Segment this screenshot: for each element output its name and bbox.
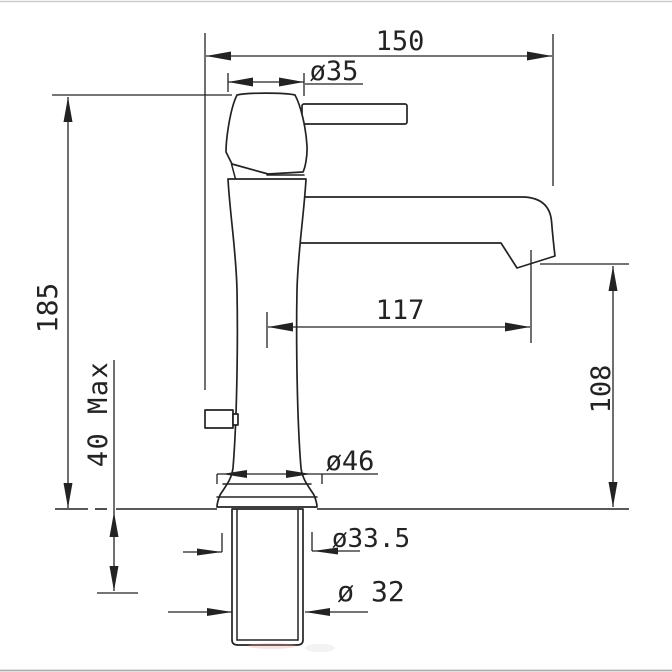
- dim-label-150: 150: [376, 26, 425, 57]
- arrowhead: [64, 483, 73, 508]
- arrowhead: [110, 512, 119, 537]
- dim-label-185: 185: [31, 283, 64, 334]
- arrowhead: [207, 608, 232, 616]
- arrowhead: [305, 608, 330, 616]
- arrowhead: [609, 482, 618, 507]
- faucet-spout: [300, 197, 555, 268]
- faucet-outline: [205, 93, 555, 652]
- arrowhead: [505, 323, 530, 332]
- dimension-108: 108: [540, 264, 629, 507]
- arrowhead: [228, 78, 253, 87]
- knob-base-edge: [232, 164, 236, 179]
- arrowhead: [527, 52, 552, 61]
- dim-label-40max: 40 Max: [83, 361, 114, 468]
- side-fixing-nub: [233, 414, 238, 425]
- smudge: [305, 644, 335, 652]
- dimension-40max: 40 Max: [83, 360, 138, 593]
- dim-label-o35: ø35: [310, 56, 359, 87]
- faucet-lever: [302, 104, 407, 124]
- faucet-dimension-drawing: 150 ø35 185 40 Max 117: [0, 0, 672, 672]
- arrowhead: [609, 266, 618, 291]
- arrowhead: [206, 52, 231, 61]
- arrowhead: [110, 566, 119, 591]
- dimension-117: 117: [267, 250, 531, 348]
- dim-label-108: 108: [586, 365, 617, 414]
- side-fixing-block: [205, 410, 233, 428]
- arrowhead: [197, 549, 222, 556]
- dim-label-o32: ø 32: [337, 575, 404, 608]
- dim-label-o46: ø46: [326, 446, 375, 477]
- dim-label-o33-5: ø33.5: [332, 524, 410, 554]
- arrowhead: [279, 78, 304, 87]
- technical-drawing-svg: 150 ø35 185 40 Max 117: [0, 0, 672, 672]
- watermark-remnant: [248, 643, 296, 649]
- dimension-185: 185: [31, 95, 232, 508]
- dim-label-117: 117: [376, 295, 425, 326]
- faucet-handle-knob: [226, 93, 307, 174]
- dimension-o35: ø35: [228, 56, 363, 96]
- arrowhead: [64, 97, 73, 122]
- mounting-shank-thread: [232, 509, 303, 645]
